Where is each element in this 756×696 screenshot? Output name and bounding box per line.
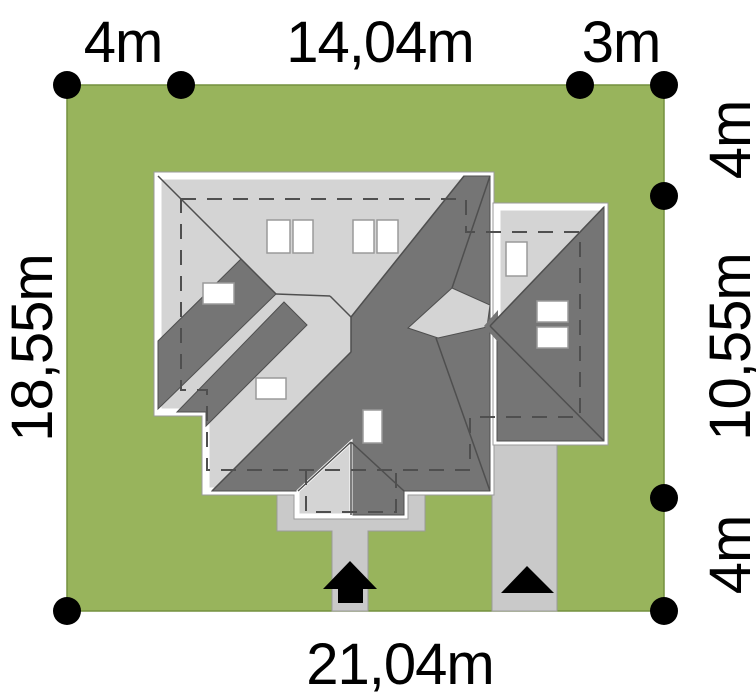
dimension-bottom: 21,04m <box>306 632 493 696</box>
dimension-right-top: 4m <box>698 101 756 180</box>
boundary-marker-dot <box>53 597 81 625</box>
garage-roof-window <box>506 242 527 276</box>
boundary-marker-dot <box>53 71 81 99</box>
dimension-top-left: 4m <box>84 10 163 75</box>
boundary-marker-dot <box>650 182 678 210</box>
boundary-marker-dot <box>650 71 678 99</box>
garage-chimney <box>537 301 568 322</box>
chimney <box>363 410 382 443</box>
boundary-marker-dot <box>566 71 594 99</box>
roof-window <box>377 220 398 253</box>
chimney <box>203 283 234 304</box>
dimension-right-bottom: 4m <box>698 516 756 595</box>
boundary-marker-dot <box>650 484 678 512</box>
garage-chimney <box>537 327 568 348</box>
chimney <box>256 378 286 399</box>
dimension-left-side: 18,55m <box>0 254 65 441</box>
site-plan-canvas: 4m 14,04m 3m 4m 10,55m 4m 18,55m 21,04m <box>0 0 756 696</box>
garage-roof <box>484 207 604 441</box>
boundary-marker-dot <box>650 597 678 625</box>
roof-window <box>353 220 374 253</box>
site-plan: 4m 14,04m 3m 4m 10,55m 4m 18,55m 21,04m <box>0 0 756 696</box>
boundary-marker-dot <box>167 71 195 99</box>
roof-window <box>267 220 290 253</box>
dimension-right-middle: 10,55m <box>698 253 756 440</box>
roof-window <box>293 220 313 253</box>
dimension-top-right: 3m <box>582 10 661 75</box>
dimension-top-center: 14,04m <box>286 10 473 75</box>
